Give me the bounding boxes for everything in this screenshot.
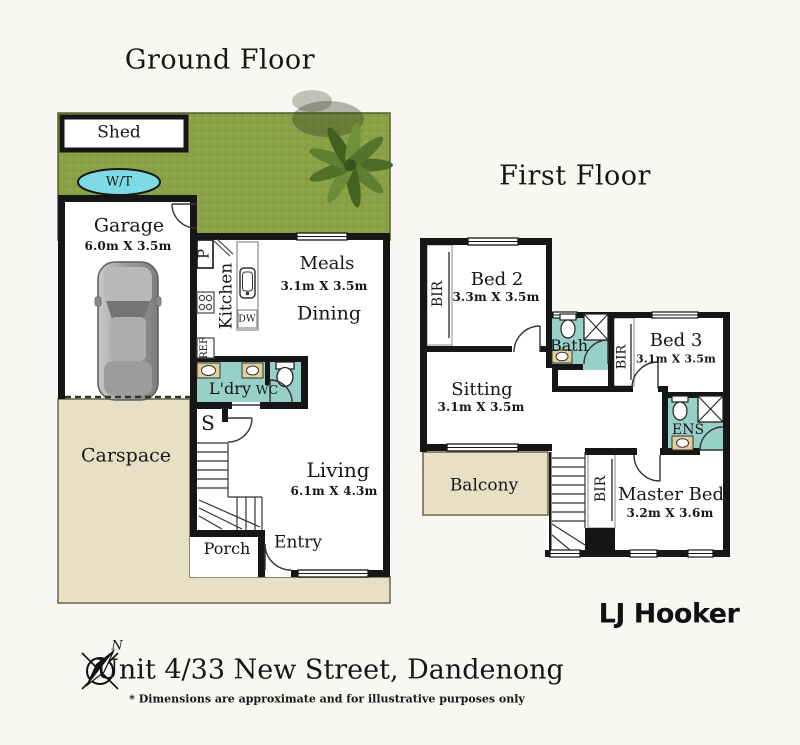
- room-label-balcony: Balcony: [450, 478, 518, 495]
- dims-sitting: 3.1m X 3.5m: [437, 401, 524, 413]
- disclaimer-text: * Dimensions are approximate and for ill…: [129, 694, 525, 705]
- floorplan: Ground Floor First Floor Shed W/T Garage…: [0, 0, 800, 745]
- cooktop-icon: [197, 292, 214, 313]
- dims-bed2: 3.3m X 3.5m: [452, 291, 539, 303]
- palm-tree-icon: [292, 90, 393, 208]
- dims-garage: 6.0m X 3.5m: [84, 240, 171, 252]
- ens-vanity: [672, 436, 693, 450]
- label-bir-bed2: BIR: [431, 281, 445, 307]
- label-bir-master: BIR: [594, 476, 608, 502]
- floorplan-geometry: [0, 0, 800, 745]
- ground-floor-title: Ground Floor: [125, 47, 315, 74]
- compass-north-label: N: [111, 640, 122, 653]
- room-label-bed3: Bed 3: [650, 332, 703, 350]
- room-label-meals: Meals: [300, 255, 355, 273]
- room-label-shed: Shed: [97, 125, 141, 142]
- label-fridge: REF: [200, 337, 210, 359]
- carspace-paving: [58, 399, 390, 603]
- room-label-sitting: Sitting: [451, 381, 512, 399]
- ground-floor-group: [58, 90, 393, 603]
- room-label-kitchen: Kitchen: [219, 263, 236, 329]
- porch-post: [197, 560, 213, 577]
- brand-logo: LJ Hooker: [599, 601, 740, 628]
- room-label-dining: Dining: [297, 305, 361, 324]
- sink-icon: [240, 268, 255, 298]
- label-water-tank: W/T: [106, 176, 132, 189]
- laundry-trough: [197, 363, 220, 378]
- first-floor-title: First Floor: [499, 163, 651, 190]
- laundry-vanity: [242, 363, 263, 378]
- car-icon: [95, 262, 161, 400]
- room-label-garage: Garage: [94, 217, 164, 236]
- first-stairs: [552, 452, 585, 550]
- room-label-bed2: Bed 2: [471, 271, 524, 289]
- room-label-laundry: L'dry: [209, 381, 251, 397]
- ens-shower-icon: [698, 396, 723, 422]
- room-label-ensuite: ENS: [672, 423, 704, 437]
- dims-master: 3.2m X 3.6m: [626, 507, 713, 519]
- ens-toilet-icon: [673, 402, 687, 420]
- dims-bed3: 3.1m X 3.5m: [636, 354, 716, 365]
- room-label-porch: Porch: [204, 541, 251, 557]
- room-label-living: Living: [306, 460, 369, 480]
- label-pantry: P: [197, 249, 212, 259]
- label-dishwasher: DW: [238, 314, 255, 324]
- toilet-icon: [276, 362, 294, 387]
- dims-meals: 3.1m X 3.5m: [280, 280, 367, 292]
- label-bir-bed3: BIR: [616, 345, 629, 369]
- room-label-master: Master Bed: [618, 486, 724, 504]
- dims-living: 6.1m X 4.3m: [290, 485, 377, 497]
- label-store: S: [201, 413, 215, 433]
- room-label-wc: WC: [256, 384, 278, 397]
- room-label-carspace: Carspace: [81, 447, 171, 466]
- address-title: Unit 4/33 New Street, Dandenong: [96, 657, 564, 684]
- room-label-bath: Bath: [550, 338, 588, 354]
- ground-stairs: [197, 443, 262, 530]
- room-label-entry: Entry: [274, 535, 322, 552]
